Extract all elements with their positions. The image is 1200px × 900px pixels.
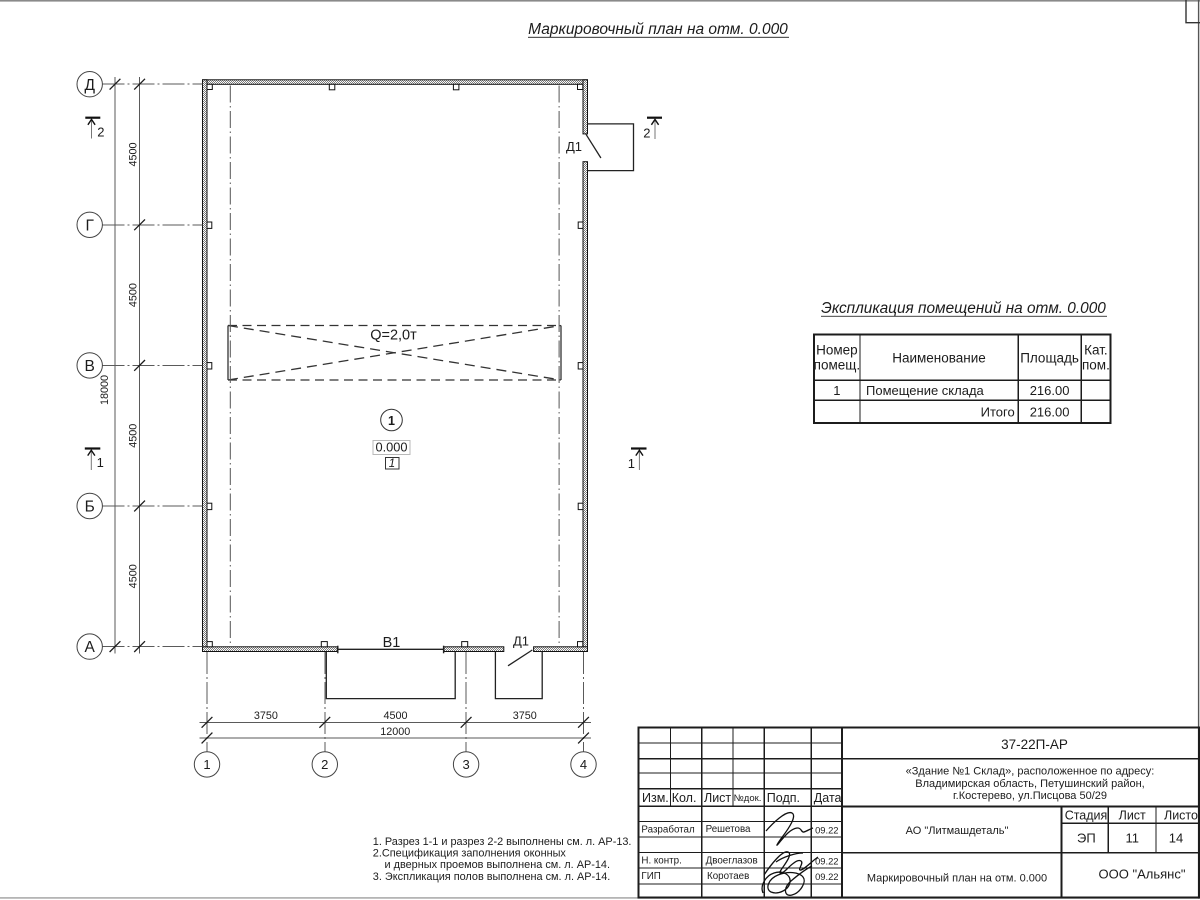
svg-text:Коротаев: Коротаев: [707, 871, 749, 882]
svg-text:А: А: [85, 639, 96, 656]
svg-text:ООО "Альянс": ООО "Альянс": [1099, 867, 1186, 882]
svg-text:18000: 18000: [99, 375, 111, 405]
svg-text:Д1: Д1: [513, 633, 529, 648]
svg-text:Кат.: Кат.: [1084, 343, 1108, 358]
svg-text:37-22П-АР: 37-22П-АР: [1001, 737, 1068, 752]
svg-text:АО "Литмашдеталь": АО "Литмашдеталь": [906, 825, 1009, 837]
svg-text:Д1: Д1: [566, 139, 582, 154]
svg-text:1: 1: [389, 458, 395, 470]
svg-text:ЭП: ЭП: [1077, 831, 1096, 846]
svg-text:Лист: Лист: [1119, 809, 1146, 823]
svg-text:216.00: 216.00: [1030, 383, 1070, 398]
svg-text:г.Костерево, ул.Писцова 50/29: г.Костерево, ул.Писцова 50/29: [953, 790, 1107, 802]
svg-text:Кол.: Кол.: [672, 791, 697, 805]
svg-text:1: 1: [203, 757, 210, 772]
svg-text:2.Спецификация заполнения окон: 2.Спецификация заполнения оконных: [373, 848, 567, 860]
svg-text:№док.: №док.: [734, 793, 762, 804]
svg-text:3: 3: [462, 757, 469, 772]
svg-text:Изм.: Изм.: [642, 791, 669, 805]
svg-text:Лист: Лист: [704, 791, 731, 805]
svg-text:216.00: 216.00: [1030, 405, 1070, 420]
svg-text:Помещение склада: Помещение склада: [866, 383, 985, 398]
svg-text:пом.: пом.: [1082, 358, 1110, 373]
svg-text:3. Экспликация полов выполнена: 3. Экспликация полов выполнена см. л. АР…: [373, 871, 611, 883]
svg-text:Листов: Листов: [1164, 809, 1200, 823]
svg-text:12000: 12000: [380, 726, 410, 738]
svg-text:1. Разрез 1-1 и разрез 2-2 вып: 1. Разрез 1-1 и разрез 2-2 выполнены см.…: [373, 836, 632, 848]
svg-text:1: 1: [833, 383, 840, 398]
svg-text:В1: В1: [383, 635, 401, 651]
svg-text:Владимирская область, Петушинс: Владимирская область, Петушинский район,: [915, 778, 1144, 790]
svg-text:Н. контр.: Н. контр.: [641, 856, 681, 867]
svg-text:4500: 4500: [128, 424, 140, 448]
svg-text:Q=2,0т: Q=2,0т: [370, 328, 417, 344]
svg-text:4500: 4500: [128, 564, 140, 588]
svg-text:3750: 3750: [254, 710, 278, 722]
svg-text:Б: Б: [85, 499, 95, 516]
svg-text:Г: Г: [85, 217, 94, 234]
svg-text:Дата: Дата: [814, 791, 842, 805]
svg-text:Подп.: Подп.: [767, 791, 800, 805]
svg-text:4500: 4500: [383, 710, 407, 722]
svg-text:09.22: 09.22: [815, 871, 838, 882]
svg-text:2: 2: [321, 757, 328, 772]
svg-text:0.000: 0.000: [375, 440, 407, 455]
svg-text:4500: 4500: [128, 283, 140, 307]
svg-text:4: 4: [580, 757, 587, 772]
svg-text:ГИП: ГИП: [641, 871, 660, 882]
svg-text:2: 2: [97, 125, 104, 140]
svg-text:Номер: Номер: [816, 343, 858, 358]
svg-text:09.22: 09.22: [815, 824, 838, 835]
svg-text:4500: 4500: [128, 142, 140, 166]
svg-text:Двоеглазов: Двоеглазов: [706, 856, 758, 867]
svg-text:Д: Д: [84, 77, 95, 94]
svg-text:«Здание №1 Склад», расположенн: «Здание №1 Склад», расположенное по адре…: [906, 766, 1155, 778]
svg-text:09.22: 09.22: [815, 855, 838, 866]
svg-text:14: 14: [1169, 831, 1183, 846]
svg-text:1: 1: [628, 456, 635, 471]
svg-text:3750: 3750: [513, 710, 537, 722]
svg-text:Наименование: Наименование: [892, 350, 986, 365]
svg-text:помещ.: помещ.: [814, 358, 860, 373]
svg-text:Стадия: Стадия: [1065, 809, 1108, 823]
svg-text:Экспликация помещений на отм.: Экспликация помещений на отм. 0.000: [821, 300, 1106, 317]
svg-text:Разработал: Разработал: [641, 824, 695, 835]
svg-text:В: В: [85, 358, 95, 375]
svg-text:и дверных проемов выполнена см: и дверных проемов выполнена см. л. АР-14…: [385, 859, 611, 871]
svg-text:1: 1: [97, 455, 104, 470]
svg-text:1: 1: [388, 414, 395, 428]
svg-text:Решетова: Решетова: [706, 824, 751, 835]
svg-text:2: 2: [643, 125, 650, 140]
svg-text:Маркировочный план на отм. 0.0: Маркировочный план на отм. 0.000: [528, 21, 788, 38]
svg-text:Площадь: Площадь: [1020, 350, 1079, 365]
svg-text:11: 11: [1125, 831, 1139, 846]
svg-text:Маркировочный план на отм. 0.0: Маркировочный план на отм. 0.000: [867, 872, 1047, 884]
svg-text:Итого: Итого: [981, 405, 1015, 420]
